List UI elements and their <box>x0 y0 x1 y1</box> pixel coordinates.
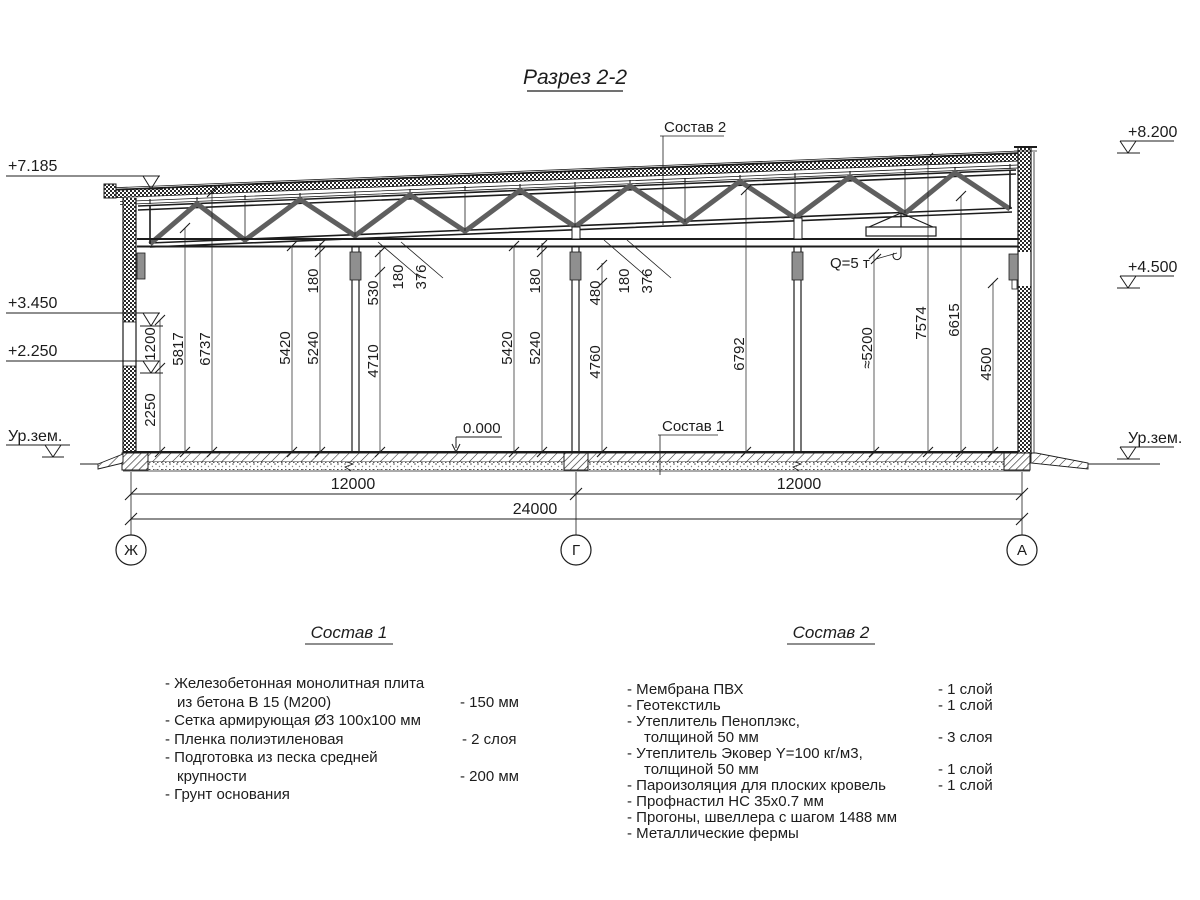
list-item: - Мембрана ПВХ <box>627 681 744 698</box>
dim-1200: 1200 <box>142 327 159 360</box>
list-value: - 1 слой <box>938 777 993 794</box>
ground-mark-right <box>1117 447 1174 459</box>
list-item: - Профнастил НС 35х0.7 мм <box>627 793 824 810</box>
list-value: - 200 мм <box>460 768 519 785</box>
list-item: - Грунт основания <box>165 786 290 803</box>
axis-label-g: Г <box>572 542 580 559</box>
list-item: толщиной 50 мм <box>644 729 759 746</box>
column-corbel-right <box>792 252 803 280</box>
dim-180-leader-center: 180 <box>616 268 633 293</box>
dimension-rows <box>131 494 1022 519</box>
drawing-title: Разрез 2-2 <box>523 66 627 91</box>
list-value: - 1 слой <box>938 761 993 778</box>
dim-376-leader-left: 376 <box>413 264 430 289</box>
dim-530: 530 <box>365 280 382 305</box>
elevation-marks-left: +7.185 +3.450 +2.250 Ур.зем. <box>6 158 163 457</box>
list-value: - 1 слой <box>938 681 993 698</box>
dim-7574: 7574 <box>913 306 930 339</box>
column-corbel-center <box>570 252 581 280</box>
list-value: - 2 слоя <box>462 731 517 748</box>
composition2-list: Состав 2 - Мембрана ПВХ - 1 слой - Геоте… <box>627 623 993 842</box>
dim-5420-center: 5420 <box>499 331 516 364</box>
crane-capacity-label: Q=5 т <box>830 255 870 272</box>
roof-composition-callout: Состав 2 <box>664 119 726 136</box>
zero-level-label: 0.000 <box>463 420 501 437</box>
dim-4500: 4500 <box>978 347 995 380</box>
dim-180-leader-left: 180 <box>390 264 407 289</box>
walls <box>123 147 1037 453</box>
bay-right-dim: 12000 <box>777 476 822 493</box>
bottom-dimensions: 12000 12000 24000 <box>125 472 1028 535</box>
list-item: из бетона В 15 (М200) <box>177 694 331 711</box>
footing-left <box>122 453 148 470</box>
ground-label-right: Ур.зем. <box>1128 430 1182 447</box>
list-item: - Утеплитель Пеноплэкс, <box>627 713 800 730</box>
elevation-7185: +7.185 <box>8 158 57 175</box>
composition1-heading: Состав 1 <box>311 623 388 642</box>
elevation-2250-mark <box>6 361 163 373</box>
dim-180-left: 180 <box>305 268 322 293</box>
footing-center <box>564 453 588 470</box>
elevation-8200: +8.200 <box>1128 124 1177 141</box>
list-value: - 1 слой <box>938 697 993 714</box>
dimension-lines <box>160 158 993 452</box>
composition2-heading: Состав 2 <box>793 623 870 642</box>
crane-hoist: Q=5 т <box>830 213 936 272</box>
list-item: - Подготовка из песка средней <box>165 749 378 766</box>
dim-6737: 6737 <box>197 332 214 365</box>
dim-376-leader-center: 376 <box>639 268 656 293</box>
dim-6792: 6792 <box>731 337 748 370</box>
apron-right <box>1031 453 1088 469</box>
list-value: - 150 мм <box>460 694 519 711</box>
composition1-list: Состав 1 - Железобетонная монолитная пли… <box>165 623 519 803</box>
dim-5420-left: 5420 <box>277 331 294 364</box>
floor-slab <box>80 452 1160 471</box>
right-wall <box>1018 147 1031 453</box>
dim-4710: 4710 <box>365 344 382 377</box>
elevation-marks-right: +8.200 +4.500 Ур.зем. <box>1117 124 1182 459</box>
dim-5240-left: 5240 <box>305 331 322 364</box>
axis-extension-lines <box>131 472 1022 535</box>
list-item: - Пароизоляция для плоских кровель <box>627 777 886 794</box>
list-item: толщиной 50 мм <box>644 761 759 778</box>
left-wall-upper <box>123 198 136 322</box>
right-wall-corbel-foot <box>1012 280 1017 289</box>
total-dim: 24000 <box>513 501 558 518</box>
dim-5200: ≈5200 <box>859 327 876 369</box>
column-corbel-left <box>350 252 361 280</box>
list-item: - Железобетонная монолитная плита <box>165 675 425 692</box>
list-item: - Прогоны, швеллера с шагом 1488 мм <box>627 809 897 826</box>
right-wall-corbel <box>1009 254 1018 280</box>
left-wall-corbel <box>137 253 145 279</box>
elevation-4500: +4.500 <box>1128 259 1177 276</box>
elevation-8200-mark <box>1117 141 1174 153</box>
ground-label-left: Ур.зем. <box>8 428 62 445</box>
elevation-3450-mark <box>6 313 163 326</box>
dim-180-center: 180 <box>527 268 544 293</box>
list-item: - Утеплитель Эковер Y=100 кг/м3, <box>627 745 863 762</box>
roof-top-line <box>108 153 1020 190</box>
axis-label-a: А <box>1017 542 1027 559</box>
dim-480: 480 <box>587 280 604 305</box>
dim-6615: 6615 <box>946 303 963 336</box>
section-drawing-sheet: Разрез 2-2 <box>0 0 1200 900</box>
beam-bearing-center <box>572 227 580 239</box>
dim-2250: 2250 <box>142 393 159 426</box>
list-item: - Пленка полиэтиленовая <box>165 731 344 748</box>
zero-level-mark <box>452 437 502 452</box>
axis-bubbles: Ж Г А <box>116 535 1037 565</box>
list-value: - 3 слоя <box>938 729 993 746</box>
dim-5817: 5817 <box>170 332 187 365</box>
apron-left <box>98 454 123 469</box>
bay-left-dim: 12000 <box>331 476 376 493</box>
axis-label-zh: Ж <box>124 542 138 559</box>
floor-composition-callout: Состав 1 <box>662 418 724 435</box>
list-item: - Металлические фермы <box>627 825 799 842</box>
left-wall-lower <box>123 366 136 453</box>
elevation-3450: +3.450 <box>8 295 57 312</box>
list-item: крупности <box>177 768 247 785</box>
dim-5240-center: 5240 <box>527 331 544 364</box>
section-drawing: Разрез 2-2 <box>0 0 1200 900</box>
list-item: - Геотекстиль <box>627 697 721 714</box>
beam-bearing-right <box>794 218 802 239</box>
left-wall-opening-edges <box>123 322 136 366</box>
roof-eave-fascia <box>104 184 116 198</box>
elevation-2250: +2.250 <box>8 343 57 360</box>
hoist-body <box>866 227 936 236</box>
dimension-ticks <box>155 153 998 457</box>
ground-mark-left <box>6 445 70 457</box>
dim-4760: 4760 <box>587 345 604 378</box>
roof-membrane-line <box>108 151 1020 188</box>
elevation-4500-mark <box>1117 276 1174 288</box>
list-item: - Сетка армирующая Ø3 100х100 мм <box>165 712 421 729</box>
footing-right <box>1004 453 1030 470</box>
page-title: Разрез 2-2 <box>523 66 627 89</box>
right-wall-beam-pocket <box>1018 252 1032 286</box>
